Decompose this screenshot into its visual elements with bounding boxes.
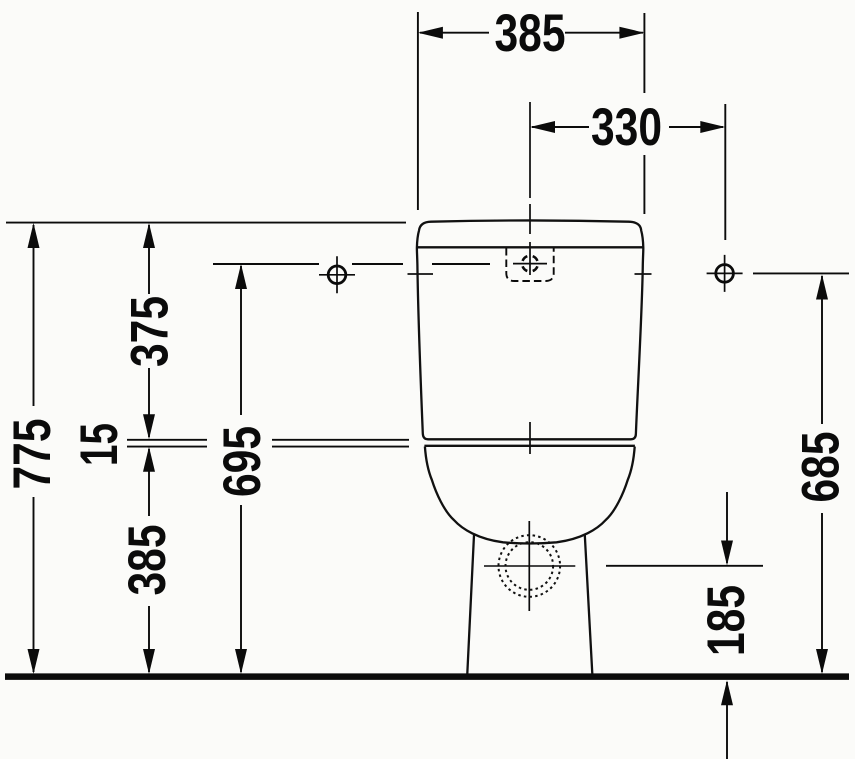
svg-text:775: 775 <box>3 419 62 490</box>
svg-text:15: 15 <box>70 423 129 466</box>
svg-text:385: 385 <box>495 4 566 63</box>
svg-text:185: 185 <box>697 585 756 656</box>
svg-text:685: 685 <box>792 432 851 503</box>
svg-text:385: 385 <box>118 525 177 596</box>
svg-text:695: 695 <box>213 426 272 497</box>
svg-text:330: 330 <box>591 98 662 157</box>
svg-text:375: 375 <box>121 296 180 367</box>
